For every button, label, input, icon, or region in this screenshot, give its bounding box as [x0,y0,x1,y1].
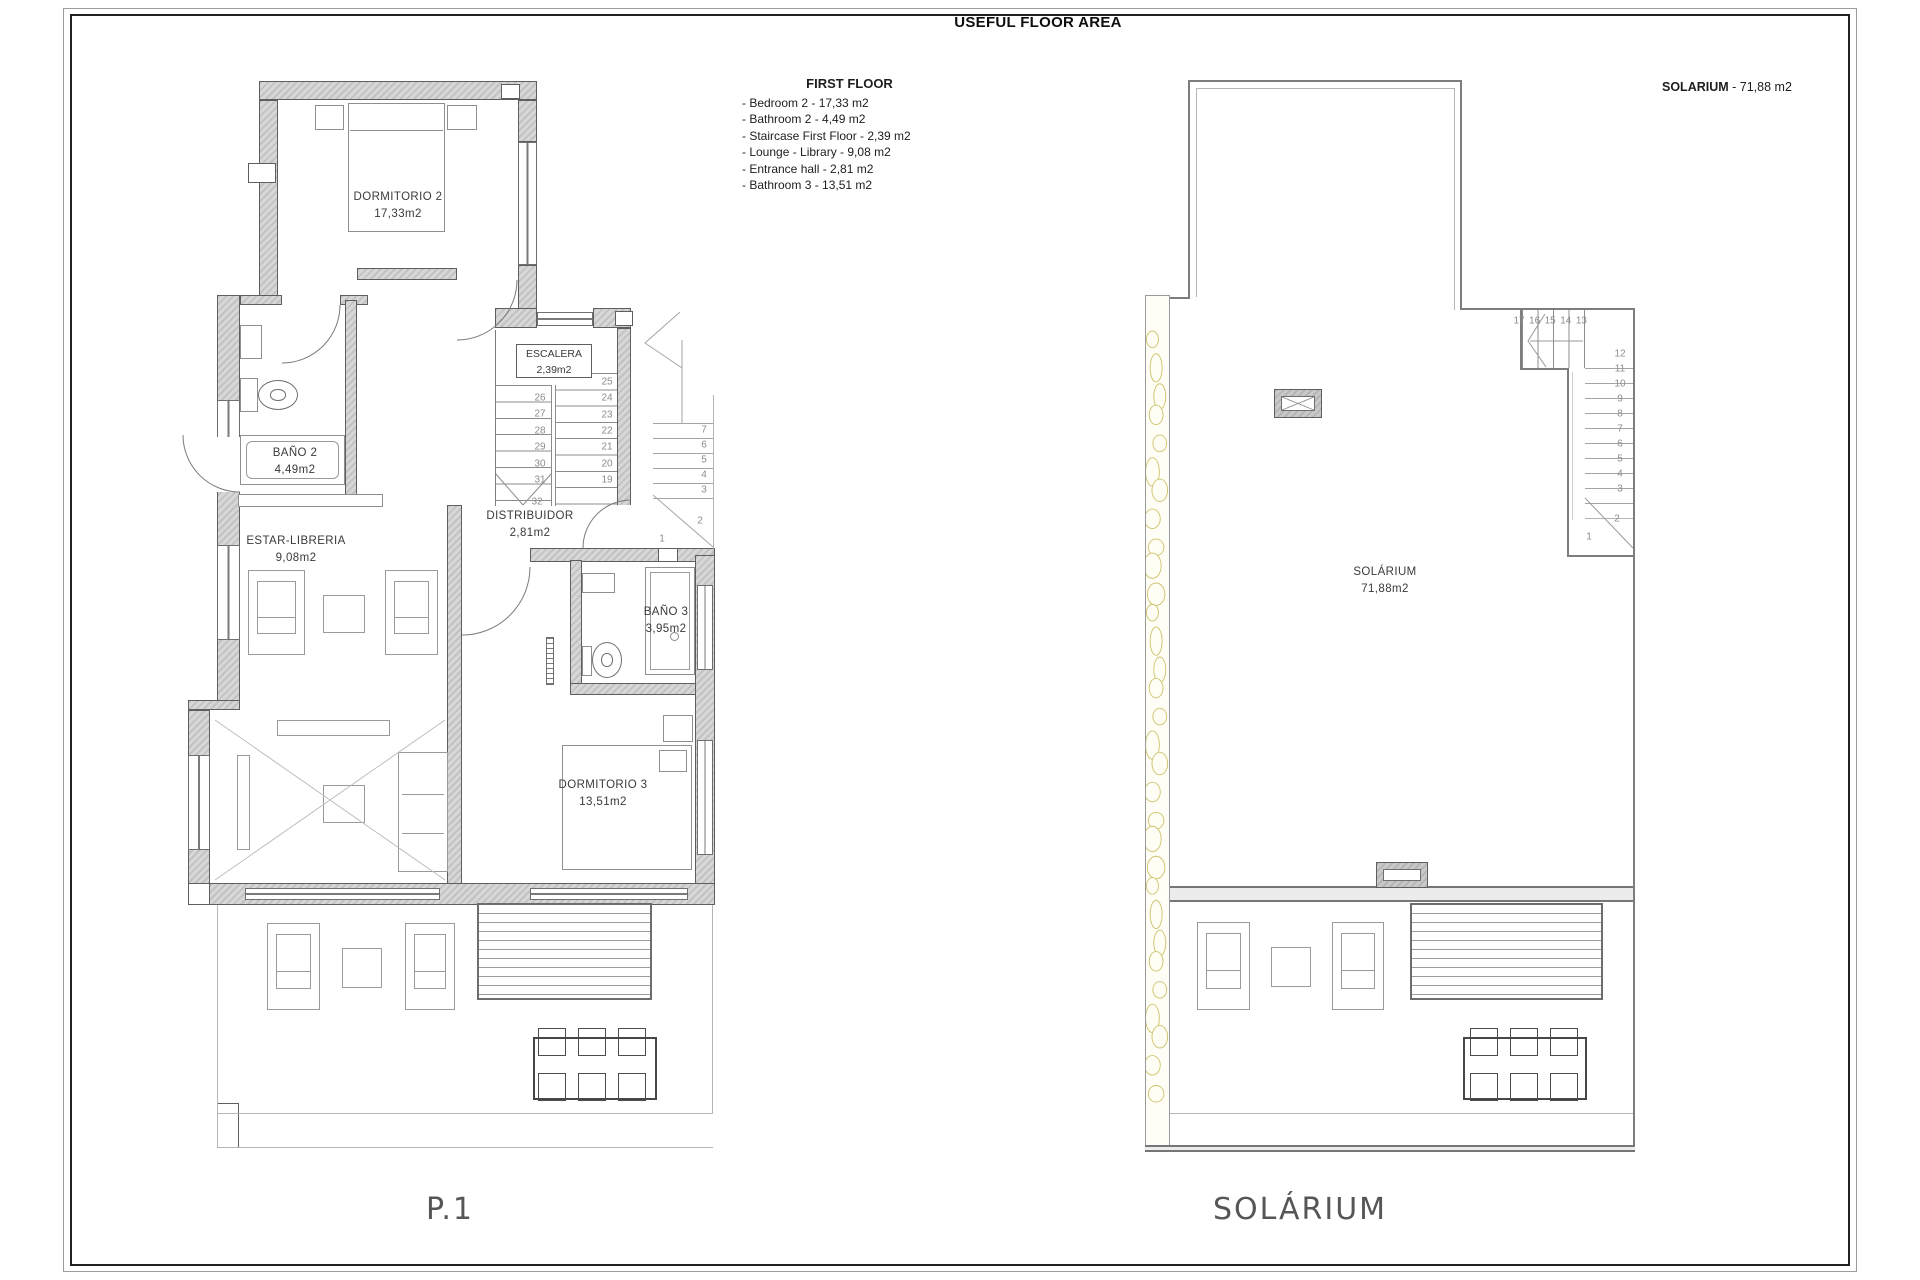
stair-step-number: 29 [534,442,545,453]
stair-step-number: 27 [534,409,545,420]
stair-steps-side [1585,368,1633,519]
stair-step-number: 2 [697,516,703,527]
stone-pebble [1145,1056,1160,1076]
room-name: SOLÁRIUM [1353,564,1416,581]
deck-pergola [1410,903,1603,1000]
stone-pebble [1152,1026,1168,1048]
stair-step-number: 32 [531,497,542,508]
stair-guide-line [1572,372,1573,520]
room-label-solarium: SOLÁRIUM 71,88m2 [1353,564,1416,597]
plan-edge [1633,308,1635,1152]
stair-step-number: 9 [1617,394,1623,405]
skylight [1274,389,1322,418]
stone-pebble [1153,435,1167,452]
stair-step-number: 28 [534,425,545,436]
stone-pebble [1153,708,1167,725]
solarium-linework [0,0,1920,1280]
stair-step-number: 25 [601,377,612,388]
parapet-inner-line [1196,88,1197,297]
plan-edge [1188,80,1190,299]
plan-edge [1188,80,1462,82]
stone-pebble [1146,604,1158,621]
armchair-seat [1341,933,1375,989]
stair-step-number: 30 [534,458,545,469]
stone-pebble [1149,952,1163,972]
stair-step-line [1585,518,1633,519]
stair-step-number: 4 [701,470,707,481]
armchair-seat [1206,933,1241,989]
stair-step-number: 15 [1545,316,1556,327]
stone-pebble [1150,627,1162,655]
skylight-glass [1281,396,1315,411]
dining-chair [1550,1073,1578,1101]
stone-pebble [1145,509,1160,529]
stone-pebble [1146,878,1158,895]
stone-pebble [1149,405,1163,425]
stone-pebble [1150,354,1162,382]
plan-bottom-wall [1145,1145,1635,1152]
stair-wall [1567,555,1635,557]
stone-pebble [1147,856,1164,878]
solarium-plan: SOLÁRIUM 71,88m2 [0,0,1920,1280]
stone-wall-texture [1145,295,1170,1152]
stair-step-number: 20 [601,458,612,469]
armchair [1197,922,1250,1010]
stone-pebble [1148,1086,1164,1103]
plan-edge [1170,297,1190,299]
plan-edge [1460,80,1462,310]
armchair-cushion-line [1206,970,1241,971]
stair-step-number: 11 [1615,364,1625,375]
stair-step-number: 7 [701,425,707,436]
stair-step-number: 14 [1560,316,1571,327]
stone-pebble [1145,826,1161,851]
plan-caption-solarium: SOLÁRIUM [1213,1192,1387,1227]
stair-wall [1520,368,1569,370]
stair-step-number: 6 [1617,439,1623,450]
stair-step-number: 26 [534,393,545,404]
dining-chair [1510,1073,1538,1101]
plan-caption-p1: P.1 [426,1192,474,1227]
stair-step-number: 5 [701,455,707,466]
stair-wall [1567,368,1569,557]
stair-step-number: 10 [1614,379,1625,390]
stair-step-number: 31 [534,475,545,486]
dining-chair [1470,1073,1498,1101]
stair-step-number: 6 [701,440,707,451]
stair-step-number: 1 [1586,532,1592,543]
stair-step-number: 19 [601,474,612,485]
stone-pebble [1145,553,1161,578]
coffee-table [1271,947,1311,987]
stair-step-number: 17 [1513,316,1524,327]
stair-step-number: 16 [1529,316,1540,327]
stone-pebble [1153,982,1167,999]
stone-pebble [1150,900,1162,928]
stair-step-number: 7 [1617,424,1623,435]
stair-step-number: 21 [601,442,612,453]
stone-pebble [1149,678,1163,698]
terrace-edge [1170,1113,1633,1114]
stone-pebble [1152,752,1168,774]
stone-pebble [1145,782,1160,802]
roof-vent [1376,862,1428,888]
stone-pebble [1147,583,1164,605]
stair-step-number: 1 [659,534,665,545]
roof-vent-inner [1383,869,1421,881]
stair-step-number: 2 [1614,514,1620,525]
drawing-sheet: USEFUL FLOOR AREA FIRST FLOOR - Bedroom … [0,0,1920,1280]
stair-step-number: 3 [1617,484,1623,495]
armchair [1332,922,1384,1010]
stone-pebble [1146,331,1158,348]
plan-edge [1460,308,1522,310]
south-wall [1170,886,1633,902]
stair-step-number: 23 [601,409,612,420]
stair-step-number: 4 [1617,469,1623,480]
stair-step-number: 22 [601,425,612,436]
parapet-inner-line [1454,88,1455,310]
stair-step-number: 24 [601,393,612,404]
stair-step-number: 3 [701,485,707,496]
parapet-inner-line [1196,88,1455,89]
armchair-cushion-line [1341,970,1375,971]
stair-step-number: 5 [1617,454,1623,465]
stair-step-number: 8 [1617,409,1623,420]
stone-pebble [1152,479,1168,501]
stair-step-number: 13 [1576,316,1587,327]
room-area: 71,88m2 [1353,581,1416,598]
stair-step-number: 12 [1614,349,1625,360]
